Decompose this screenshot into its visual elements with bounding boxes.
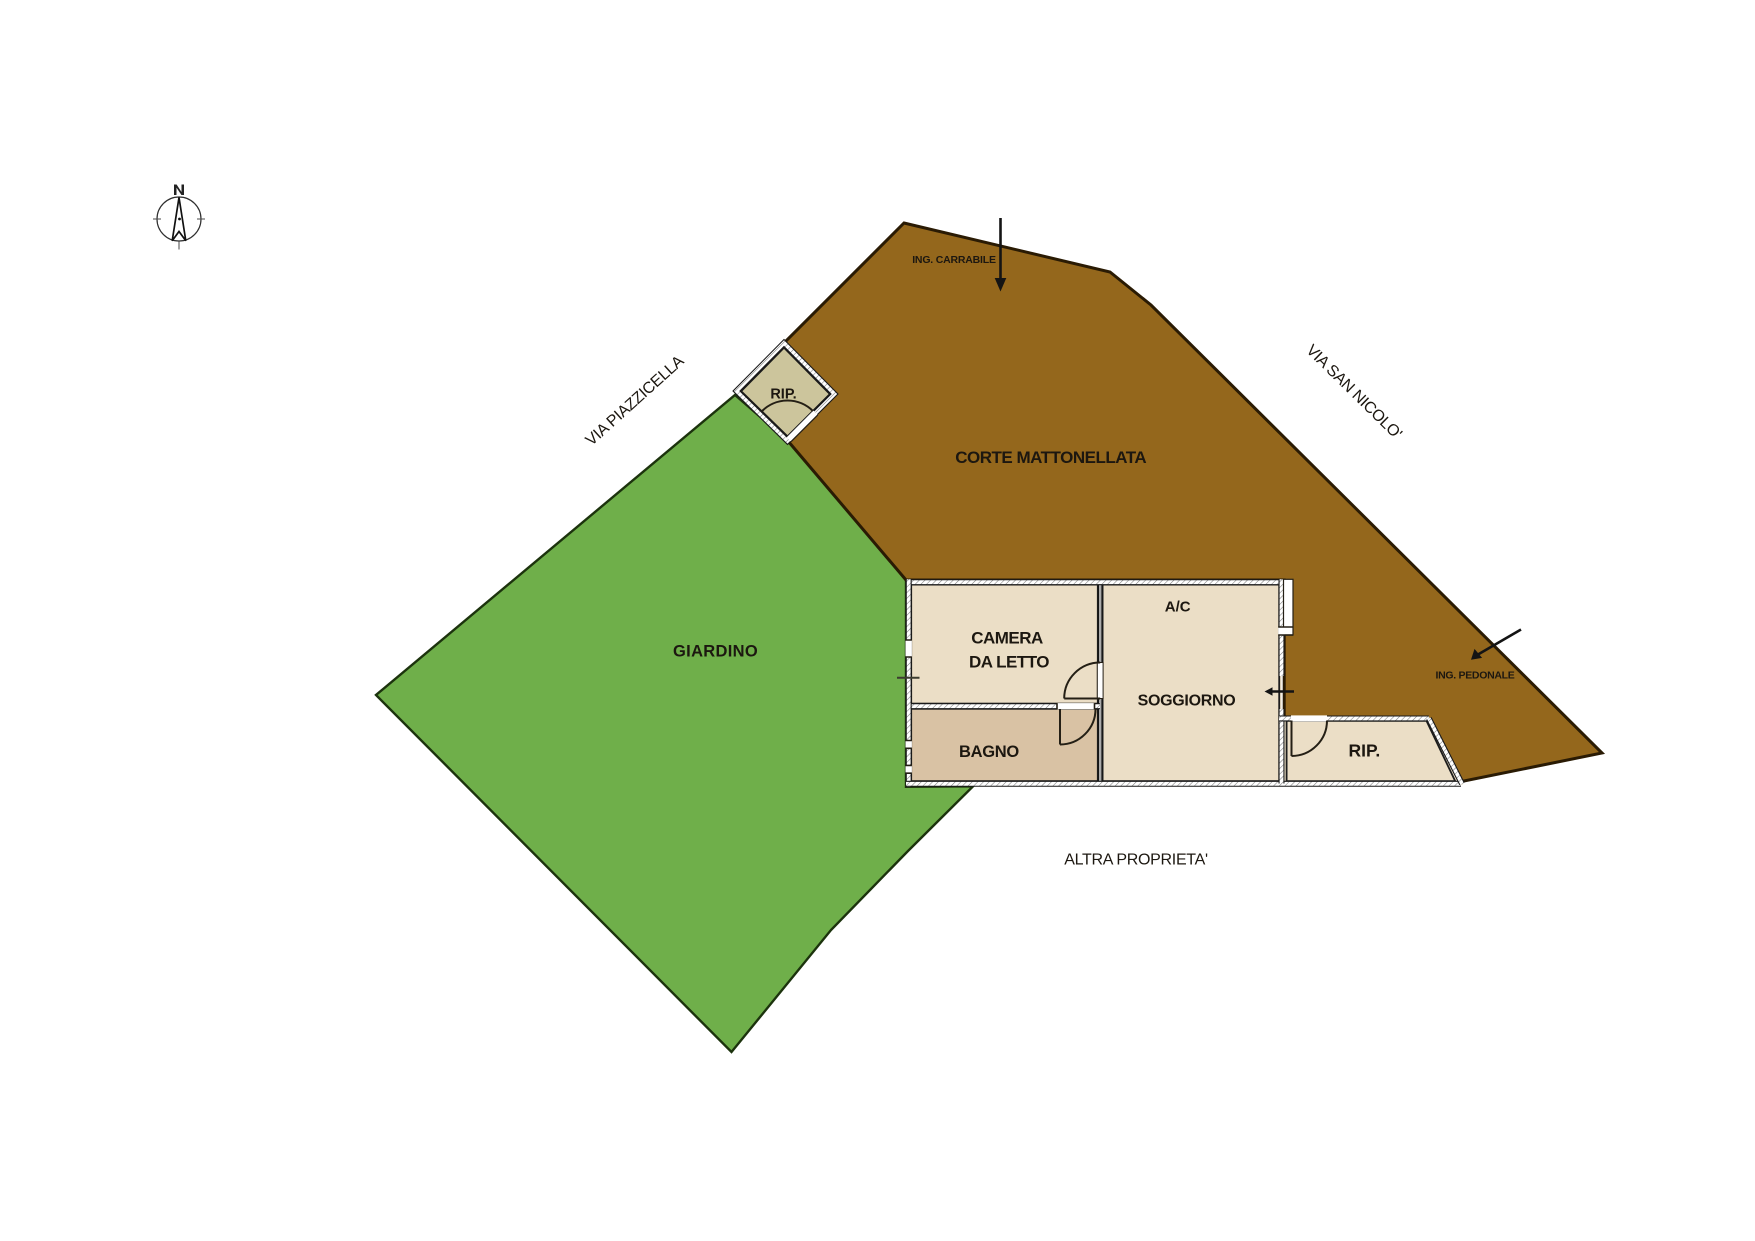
svg-text:ALTRA PROPRIETA': ALTRA PROPRIETA' (1064, 851, 1208, 868)
svg-text:A/C: A/C (1165, 599, 1191, 616)
svg-text:ING. CARRABILE: ING. CARRABILE (912, 254, 996, 266)
svg-text:CAMERA: CAMERA (971, 628, 1043, 647)
svg-text:GIARDINO: GIARDINO (673, 643, 758, 661)
svg-text:SOGGIORNO: SOGGIORNO (1138, 693, 1236, 710)
svg-text:BAGNO: BAGNO (959, 743, 1019, 761)
svg-text:ING. PEDONALE: ING. PEDONALE (1436, 670, 1515, 682)
svg-text:CORTE MATTONELLATA: CORTE MATTONELLATA (955, 448, 1146, 467)
svg-text:RIP.: RIP. (1349, 741, 1381, 761)
svg-text:DA LETTO: DA LETTO (969, 652, 1049, 671)
svg-text:RIP.: RIP. (770, 387, 796, 403)
